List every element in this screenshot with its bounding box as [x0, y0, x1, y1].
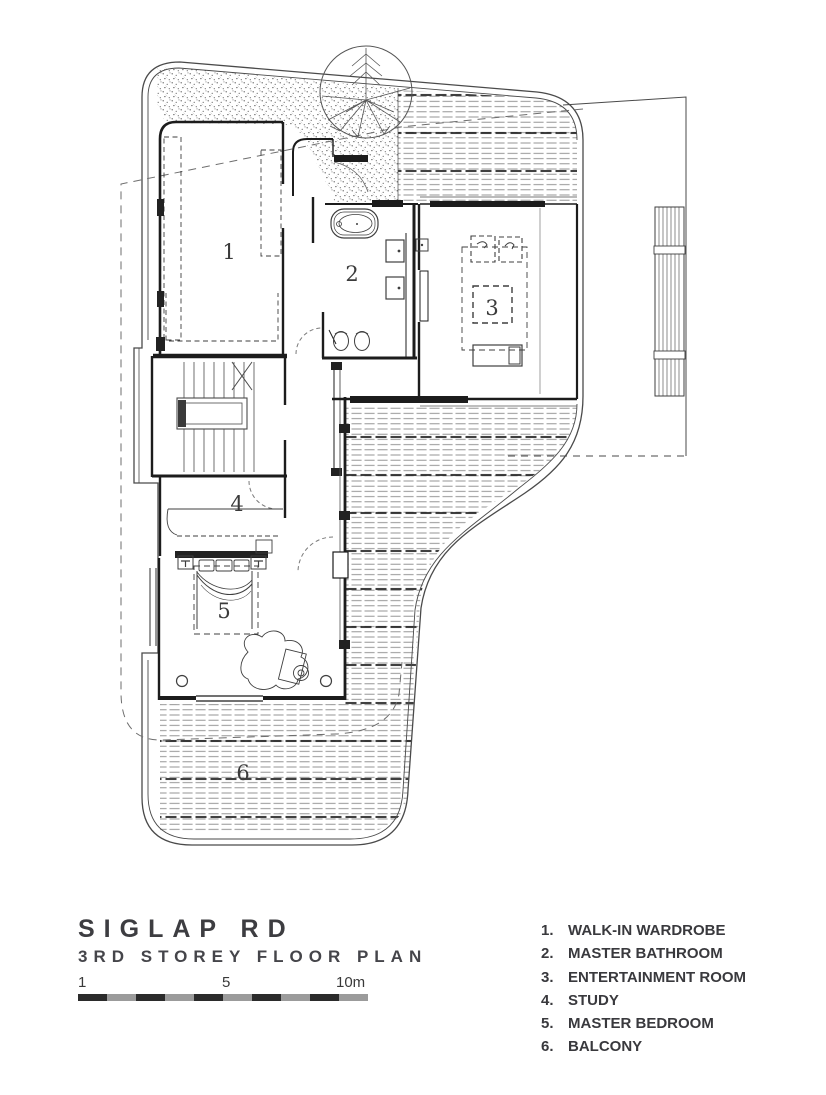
room-label-1: 1 [222, 240, 235, 264]
study-desk [167, 509, 283, 553]
vanity-sinks [386, 239, 428, 299]
lounge-chair [241, 631, 309, 690]
bathroom-door-arc [296, 328, 322, 354]
plan-drawing: 1 2 3 4 5 6 [0, 0, 826, 880]
legend-item-number: 5. [541, 1012, 568, 1035]
scale-segment [281, 994, 310, 1001]
bedroom-columns [177, 676, 332, 687]
legend-item: 5. MASTER BEDROOM [541, 1012, 746, 1035]
legend-item: 6. BALCONY [541, 1035, 746, 1058]
scale-bar [78, 994, 368, 1001]
scale-segment [194, 994, 223, 1001]
legend-item: 3. ENTERTAINMENT ROOM [541, 966, 746, 989]
legend-item-label: BALCONY [568, 1035, 642, 1058]
bedroom-terrace-door-arc [298, 537, 333, 572]
scale-segment [310, 994, 339, 1001]
legend-item-label: STUDY [568, 989, 619, 1012]
scale-segment [78, 994, 107, 1001]
scale-labels: 1 5 10m [78, 974, 478, 992]
legend-item-number: 3. [541, 966, 568, 989]
study-door-arc [249, 481, 277, 509]
scale-label-start: 1 [78, 974, 86, 991]
room-label-3: 3 [485, 296, 498, 320]
legend-item: 4. STUDY [541, 989, 746, 1012]
legend-item-number: 6. [541, 1035, 568, 1058]
scale-label-end: 10m [336, 974, 365, 991]
legend-item-number: 4. [541, 989, 568, 1012]
scale-segment [107, 994, 136, 1001]
legend-item: 1. WALK-IN WARDROBE [541, 919, 746, 942]
legend-item: 2. MASTER BATHROOM [541, 942, 746, 965]
legend-item-label: MASTER BEDROOM [568, 1012, 714, 1035]
legend-item-label: ENTERTAINMENT ROOM [568, 966, 746, 989]
toilets [334, 332, 370, 351]
page-title: SIGLAP RD [78, 916, 478, 942]
scale-segment [223, 994, 252, 1001]
floor-plan-sheet: 1 2 3 4 5 6 SIGLAP RD 3RD STOREY FLOOR P… [0, 0, 826, 1095]
room-legend: 1. WALK-IN WARDROBE 2. MASTER BATHROOM 3… [541, 919, 746, 1059]
scale-label-mid: 5 [222, 974, 230, 991]
page-subtitle: 3RD STOREY FLOOR PLAN [78, 947, 478, 967]
legend-item-number: 2. [541, 942, 568, 965]
plan-svg: 1 2 3 4 5 6 [0, 0, 826, 880]
title-block: SIGLAP RD 3RD STOREY FLOOR PLAN 1 5 10m [78, 916, 478, 1001]
legend-item-label: MASTER BATHROOM [568, 942, 723, 965]
room-label-6: 6 [236, 761, 249, 785]
room-label-5: 5 [217, 599, 230, 623]
scale-segment [252, 994, 281, 1001]
scale-segment [136, 994, 165, 1001]
louvre-screen [654, 207, 685, 396]
deck-hatch-top [398, 90, 577, 202]
door-swings [249, 328, 333, 572]
scale-segment [339, 994, 368, 1001]
planter-hatch [157, 66, 398, 202]
staircase [177, 362, 254, 472]
scale-segment [165, 994, 194, 1001]
bathtub [331, 209, 378, 238]
room-label-2: 2 [345, 262, 358, 286]
legend-item-number: 1. [541, 919, 568, 942]
room-label-4: 4 [230, 492, 243, 516]
legend-item-label: WALK-IN WARDROBE [568, 919, 726, 942]
